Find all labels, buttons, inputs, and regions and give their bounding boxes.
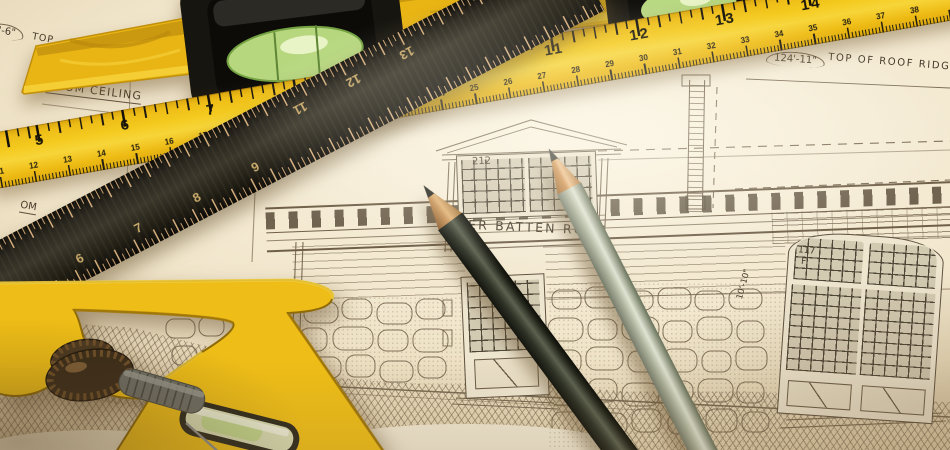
annotation-french-letter: F xyxy=(801,257,807,267)
door-110-panel xyxy=(474,357,539,390)
french-right-leaf xyxy=(857,241,939,417)
photo-architect-tools-on-blueprint: 3'-6" TOP ROOM CEILING OFF OM 2'-4" 124'… xyxy=(0,0,950,450)
french-left-leaf xyxy=(783,236,865,412)
annotation-french-number: 117 xyxy=(798,245,816,256)
combination-square xyxy=(0,205,460,450)
